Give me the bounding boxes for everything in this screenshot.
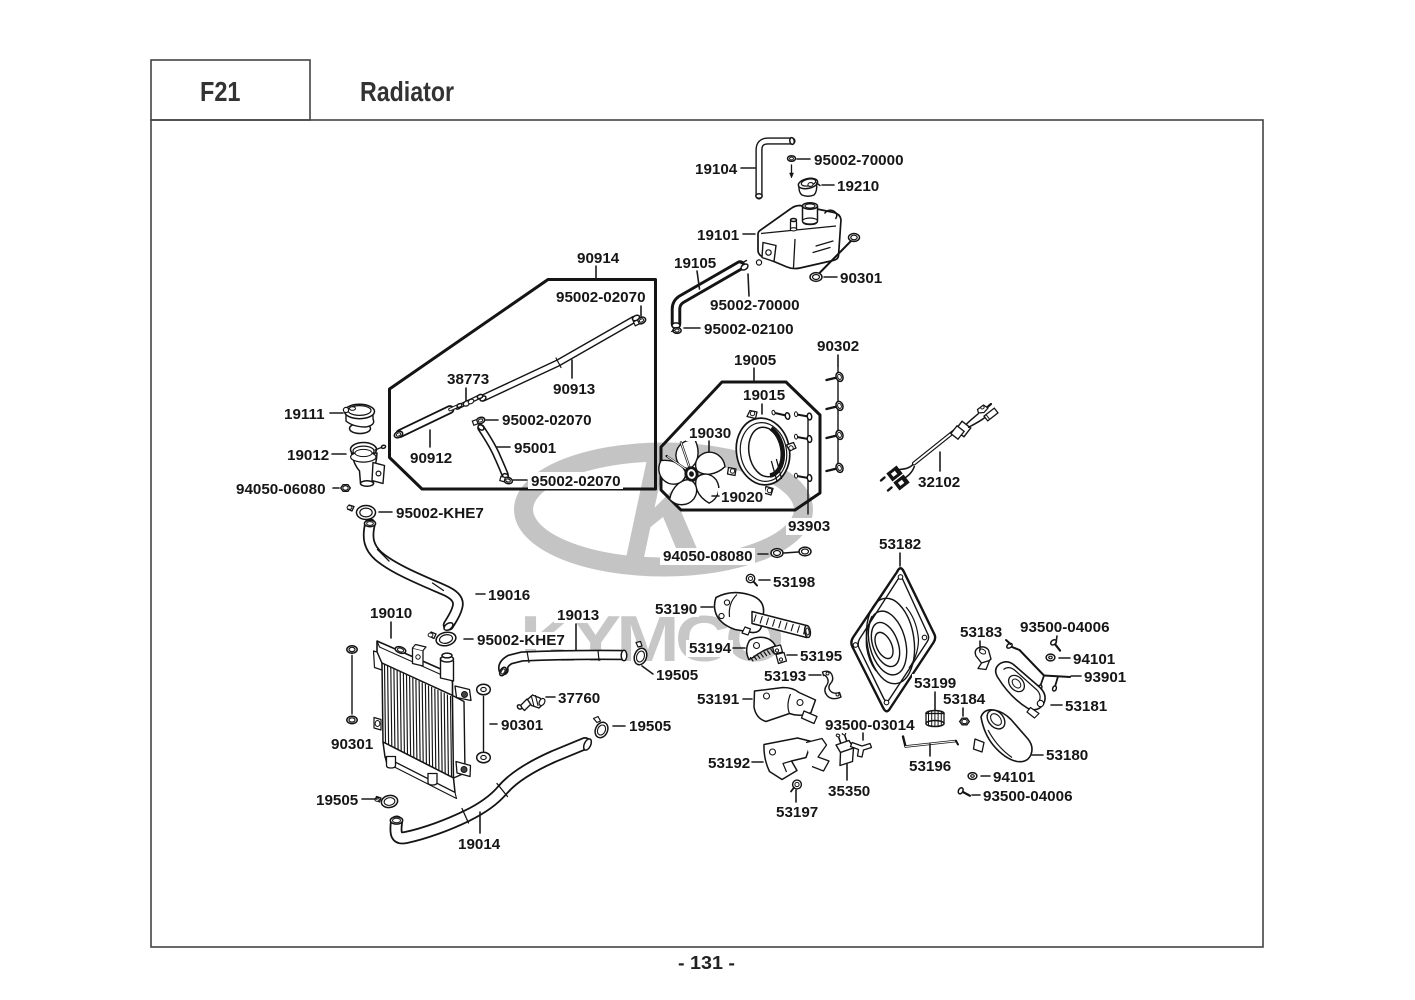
svg-text:94050-08080: 94050-08080 [663,548,753,565]
svg-text:53199: 53199 [914,675,956,692]
svg-text:90301: 90301 [840,270,883,287]
svg-text:95002-70000: 95002-70000 [814,152,904,169]
svg-text:19105: 19105 [674,255,717,272]
svg-text:53182: 53182 [879,536,921,553]
svg-text:19005: 19005 [734,352,777,369]
svg-text:53195: 53195 [800,648,843,665]
svg-text:19013: 19013 [557,607,599,624]
svg-text:53194: 53194 [689,640,732,657]
svg-text:19016: 19016 [488,587,530,604]
svg-text:93901: 93901 [1084,669,1127,686]
svg-text:95002-KHE7: 95002-KHE7 [477,632,565,649]
svg-text:53191: 53191 [697,691,740,708]
svg-text:90301: 90301 [331,736,374,753]
svg-text:90301: 90301 [501,717,544,734]
svg-text:94050-06080: 94050-06080 [236,481,326,498]
svg-text:32102: 32102 [918,474,960,491]
svg-text:53183: 53183 [960,624,1002,641]
svg-text:95002-70000: 95002-70000 [710,297,800,314]
svg-text:19020: 19020 [721,489,763,506]
svg-text:19505: 19505 [656,667,699,684]
svg-text:90302: 90302 [817,338,859,355]
svg-text:53181: 53181 [1065,698,1108,715]
svg-text:Radiator: Radiator [360,76,454,107]
svg-text:19505: 19505 [629,718,672,735]
svg-text:90914: 90914 [577,250,620,267]
svg-text:90912: 90912 [410,450,452,467]
svg-text:19010: 19010 [370,605,412,622]
svg-text:53197: 53197 [776,804,818,821]
svg-text:- 131 -: - 131 - [678,952,735,973]
svg-text:53184: 53184 [943,691,986,708]
svg-text:93500-03014: 93500-03014 [825,717,915,734]
svg-text:95002-KHE7: 95002-KHE7 [396,505,484,522]
svg-text:93500-04006: 93500-04006 [1020,619,1110,636]
svg-text:93903: 93903 [788,518,830,535]
svg-text:19015: 19015 [743,387,786,404]
svg-text:93500-04006: 93500-04006 [983,788,1073,805]
svg-text:53196: 53196 [909,758,951,775]
svg-text:19111: 19111 [284,406,325,423]
svg-text:35350: 35350 [828,783,870,800]
svg-text:94101: 94101 [993,769,1036,786]
svg-text:19104: 19104 [695,161,738,178]
svg-text:95002-02070: 95002-02070 [531,473,621,490]
svg-text:94101: 94101 [1073,651,1116,668]
svg-text:53190: 53190 [655,601,697,618]
svg-text:53192: 53192 [708,755,750,772]
svg-text:F21: F21 [200,76,241,107]
svg-text:38773: 38773 [447,371,489,388]
svg-text:95002-02100: 95002-02100 [704,321,794,338]
svg-text:90913: 90913 [553,381,595,398]
svg-text:19101: 19101 [697,227,740,244]
svg-text:95002-02070: 95002-02070 [556,289,646,306]
svg-text:19014: 19014 [458,836,501,853]
svg-text:19505: 19505 [316,792,359,809]
svg-text:19210: 19210 [837,178,879,195]
svg-text:19012: 19012 [287,447,329,464]
svg-text:53193: 53193 [764,668,806,685]
svg-text:19030: 19030 [689,425,731,442]
svg-text:53198: 53198 [773,574,815,591]
svg-text:95001: 95001 [514,440,557,457]
svg-text:95002-02070: 95002-02070 [502,412,592,429]
svg-text:37760: 37760 [558,690,600,707]
svg-text:53180: 53180 [1046,747,1088,764]
